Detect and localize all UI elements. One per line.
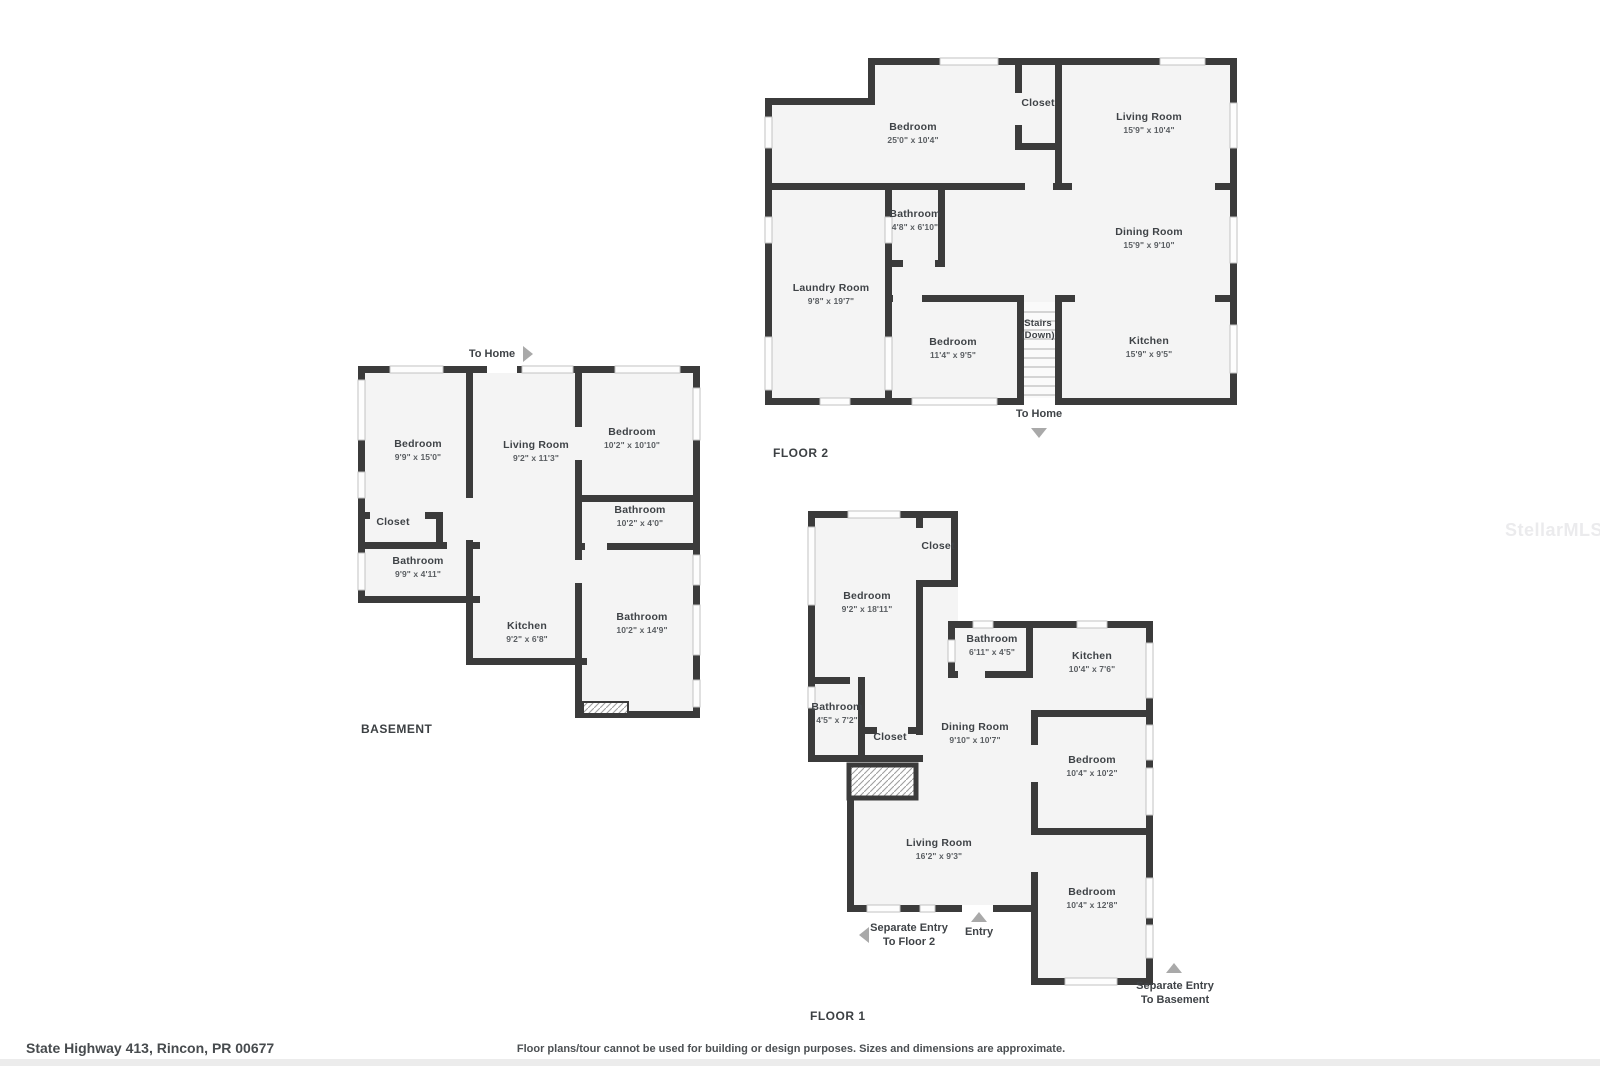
room-label-f1-closet-top: Closet [921,540,954,554]
room-label-b-bathroom10240: Bathroom 10'2" x 4'0" [614,504,665,529]
bottom-strip [0,1059,1600,1066]
room-label-b-bathroom99411: Bathroom 9'9" x 4'11" [392,555,443,580]
basement-to-home-label: To Home [469,347,515,361]
room-label-f1-closet-mid: Closet [873,731,906,745]
entry-label: Entry [965,925,993,939]
room-label-f2-laundry: Laundry Room 9'8" x 19'7" [793,282,870,307]
floorplan-page: Bedroom 25'0" x 10'4" Closet Living Room… [0,0,1600,1066]
property-address: State Highway 413, Rincon, PR 00677 [26,1040,274,1056]
room-label-f2-living: Living Room 15'9" x 10'4" [1116,111,1182,136]
basement-title: BASEMENT [361,722,432,736]
basement-to-home-arrow-icon [523,346,533,362]
floor1-hatched-stairs [849,765,916,798]
room-label-f1-bedroom921811: Bedroom 9'2" x 18'11" [842,590,893,615]
floorplan-drawing [0,0,1600,1066]
separate-entry-floor2-arrow-icon [859,927,869,943]
room-label-f1-bathroom61145: Bathroom 6'11" x 4'5" [966,633,1017,658]
disclaimer-text: Floor plans/tour cannot be used for buil… [517,1043,1065,1055]
f2-to-home-arrow-icon [1031,428,1047,438]
f2-to-home-label: To Home [1016,407,1062,421]
basement-hatched-entry [583,702,628,714]
room-label-b-living: Living Room 9'2" x 11'3" [503,439,569,464]
floor2-title: FLOOR 2 [773,446,829,460]
stairs-down-treads [1024,302,1055,398]
separate-entry-basement-arrow-icon [1166,963,1182,973]
room-label-f1-kitchen: Kitchen 10'4" x 7'6" [1069,650,1115,675]
room-label-b-closet: Closet [376,516,409,530]
room-label-f1-bedroom104128: Bedroom 10'4" x 12'8" [1066,886,1117,911]
room-label-b-kitchen: Kitchen 9'2" x 6'8" [506,620,548,645]
basement-plan [358,366,700,718]
room-label-b-bedroom1021010: Bedroom 10'2" x 10'10" [604,426,660,451]
room-label-f2-stairs: Stairs (Down) [1021,318,1054,343]
room-label-b-bedroom9915: Bedroom 9'9" x 15'0" [394,438,442,463]
room-label-f2-bedroom25: Bedroom 25'0" x 10'4" [887,121,938,146]
separate-entry-basement-label: Separate Entry To Basement [1136,979,1214,1008]
entry-arrow-icon [971,912,987,922]
room-label-f1-bathroom4572: Bathroom 4'5" x 7'2" [811,701,862,726]
room-label-f2-closet: Closet [1021,97,1054,111]
room-label-f1-bedroom104102: Bedroom 10'4" x 10'2" [1066,754,1117,779]
floor1-title: FLOOR 1 [810,1009,866,1023]
room-label-f2-dining: Dining Room 15'9" x 9'10" [1115,226,1183,251]
stellar-mls-watermark: StellarMLS [1505,520,1600,541]
room-label-f2-kitchen: Kitchen 15'9" x 9'5" [1126,335,1172,360]
room-label-f1-living: Living Room 16'2" x 9'3" [906,837,972,862]
room-label-f2-bedroom11: Bedroom 11'4" x 9'5" [929,336,977,361]
separate-entry-floor2-label: Separate Entry To Floor 2 [870,921,948,950]
room-label-b-bathroom102149: Bathroom 10'2" x 14'9" [616,611,667,636]
room-label-f1-dining: Dining Room 9'10" x 10'7" [941,721,1009,746]
room-label-f2-bathroom: Bathroom 4'8" x 6'10" [889,208,940,233]
